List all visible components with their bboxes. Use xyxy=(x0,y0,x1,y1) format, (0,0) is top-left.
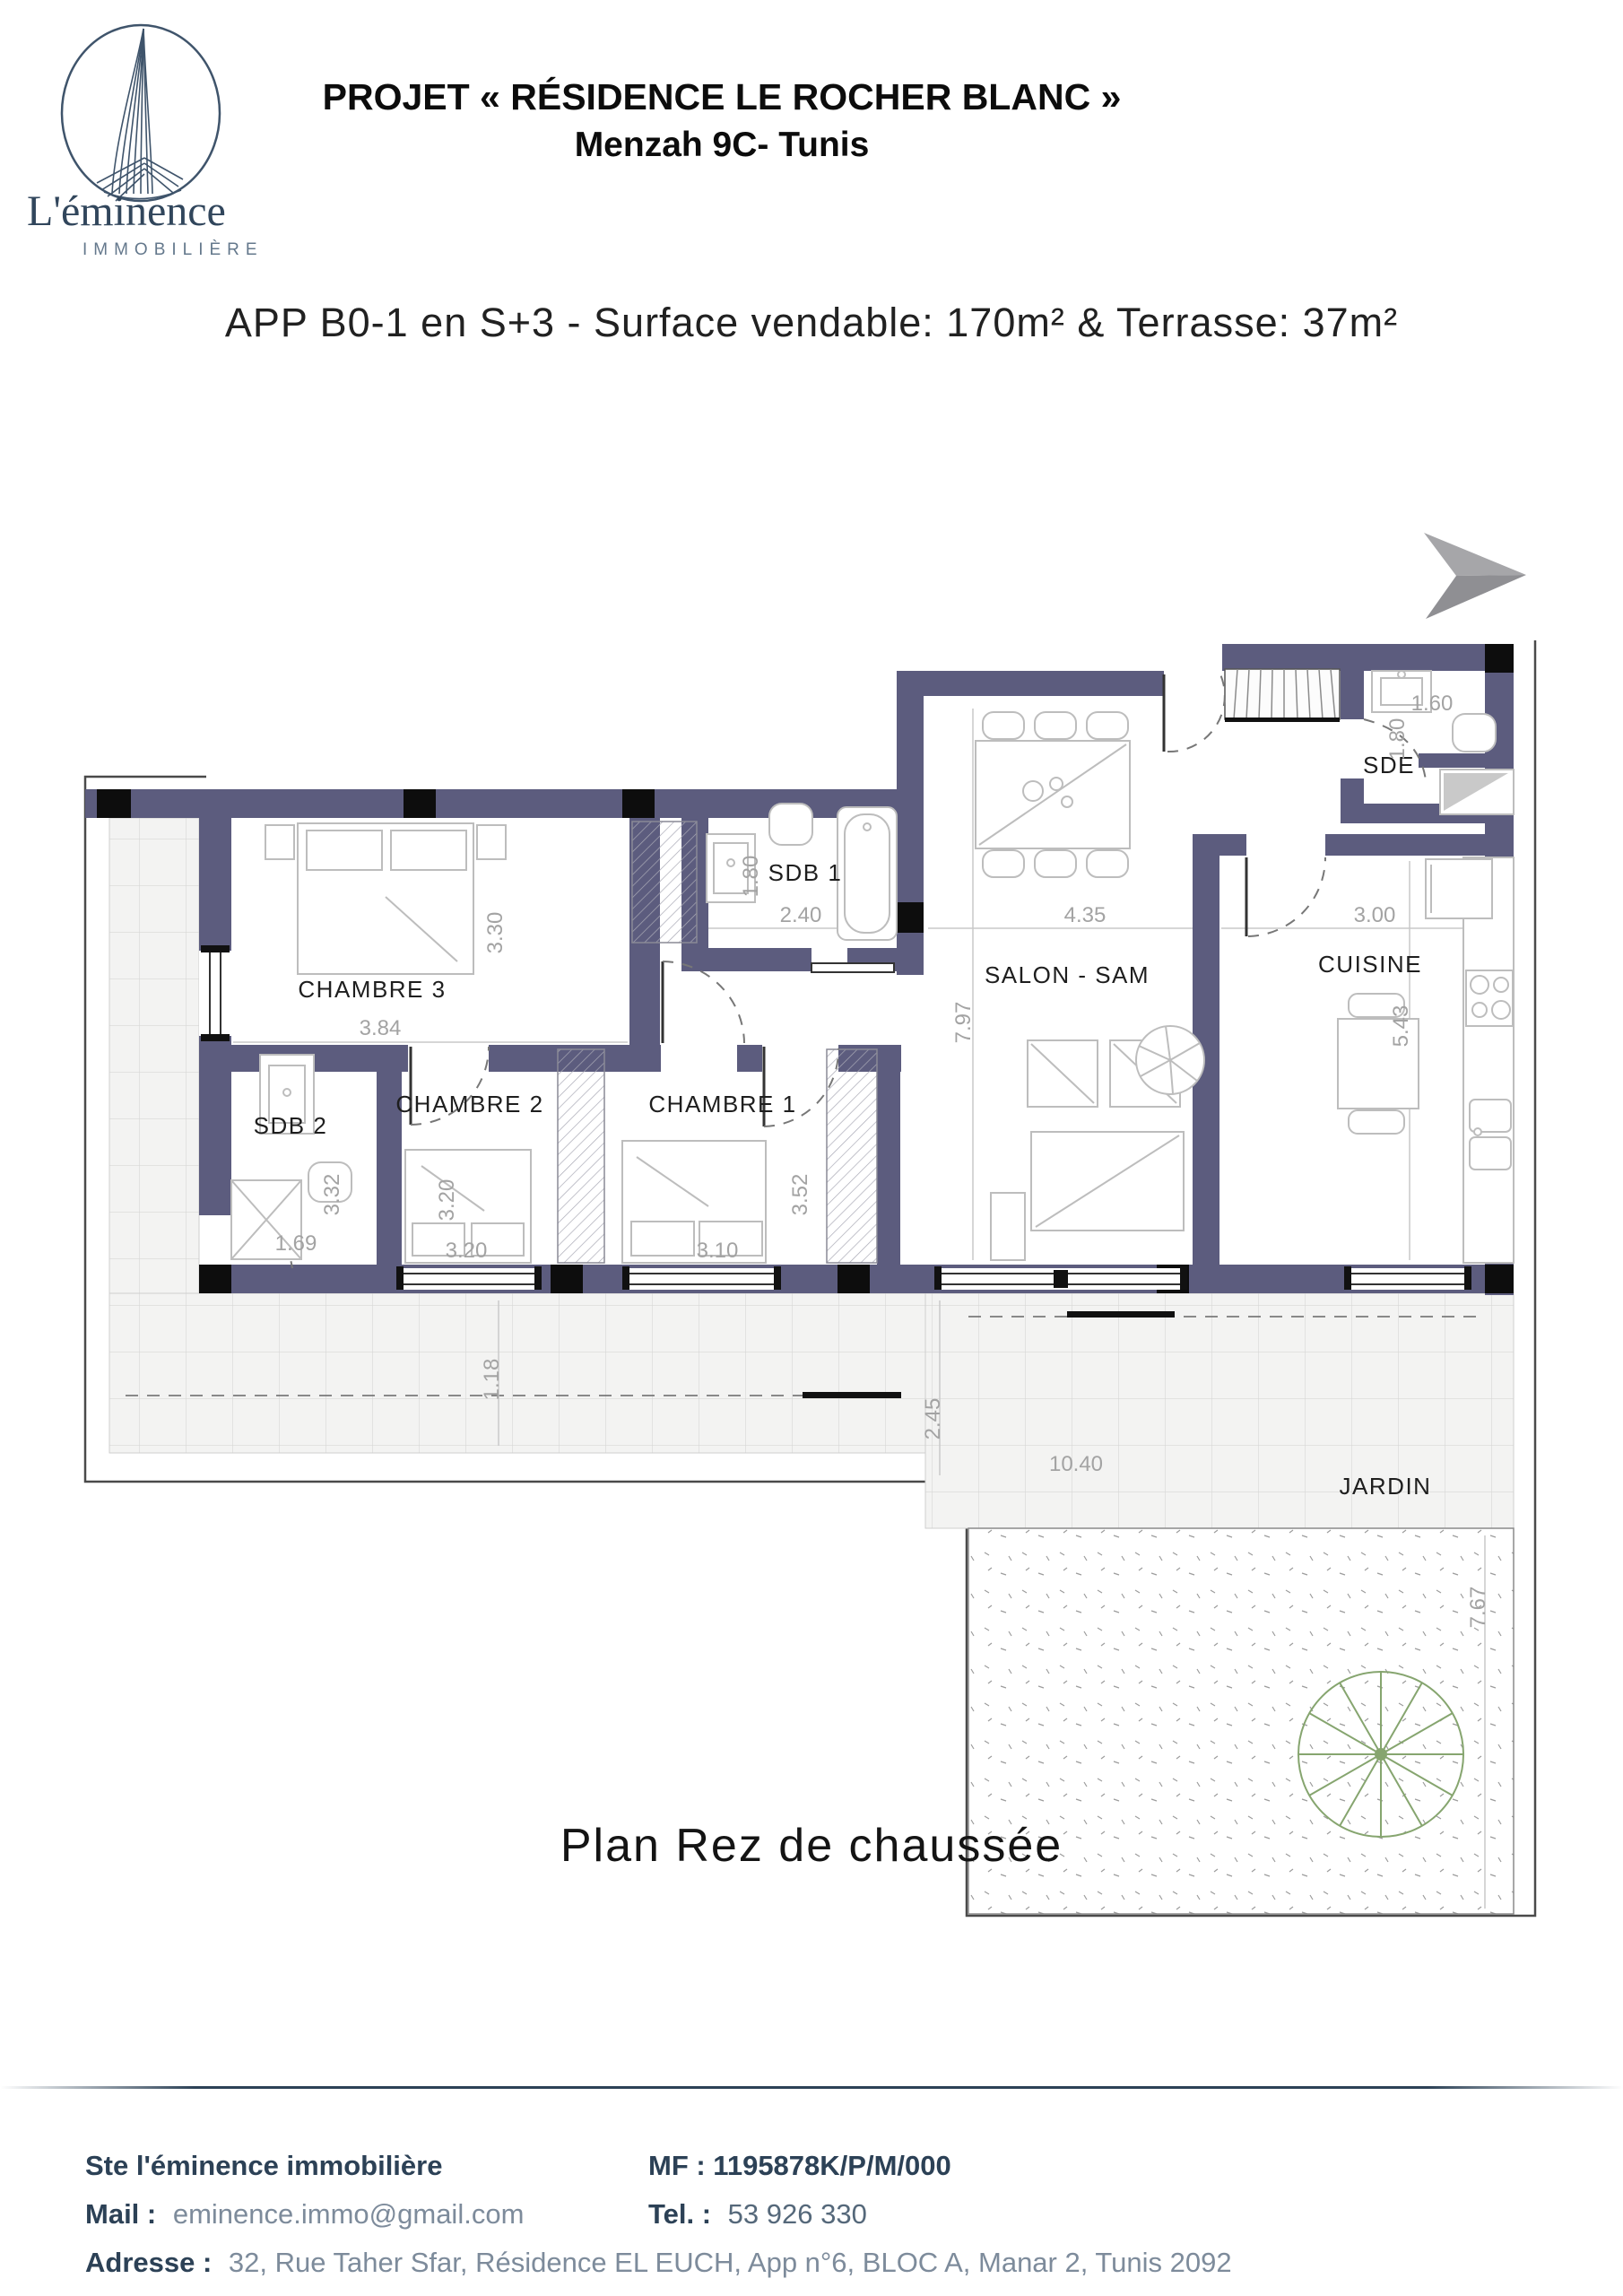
dimension-label: 10.40 xyxy=(1049,1452,1103,1476)
dimension-label: 5.43 xyxy=(1389,1005,1413,1048)
dimension-label: 2.40 xyxy=(780,903,822,927)
footer-divider xyxy=(0,2086,1623,2089)
window-chambre2 xyxy=(396,1266,542,1290)
sdb1-bathtub xyxy=(838,807,897,940)
north-arrow-icon xyxy=(1424,533,1526,619)
dimension-label: 1.80 xyxy=(739,856,763,898)
footer-contact-block: Ste l'éminence immobilière MF : 1195878K… xyxy=(85,2142,1592,2287)
dimension-label: 3.84 xyxy=(360,1016,402,1040)
room-label-chambre-2: CHAMBRE 2 xyxy=(395,1091,543,1118)
room-label-jardin: JARDIN xyxy=(1340,1473,1432,1500)
brochure-page: L'éminence IMMOBILIÈRE PROJET « RÉSIDENC… xyxy=(0,0,1623,2296)
dimension-label: 7.97 xyxy=(951,1002,976,1044)
footer-mail-label: Mail : xyxy=(85,2198,156,2230)
plant-icon xyxy=(1136,1026,1204,1094)
dimension-label: 1.80 xyxy=(1385,718,1410,761)
dimension-label: 3.20 xyxy=(446,1239,488,1263)
footer-address-label: Adresse : xyxy=(85,2247,212,2278)
room-label-cuisine: CUISINE xyxy=(1318,951,1422,978)
window-chambre3-left xyxy=(199,945,231,1041)
footer-tel-value: 53 926 330 xyxy=(728,2198,867,2230)
room-label-sdb-1: SDB 1 xyxy=(768,859,843,886)
dimension-label: 1.60 xyxy=(1411,691,1454,716)
fridge xyxy=(1426,859,1492,918)
dimension-label: 3.00 xyxy=(1354,903,1396,927)
footer-company: Ste l'éminence immobilière xyxy=(85,2142,648,2190)
footer-mf: MF : 1195878K/P/M/000 xyxy=(648,2142,951,2190)
window-cuisine xyxy=(1344,1266,1471,1290)
room-label-chambre-1: CHAMBRE 1 xyxy=(648,1091,796,1118)
sde-toilet xyxy=(1453,714,1496,752)
room-label-salon-sam: SALON - SAM xyxy=(985,961,1150,988)
dining-table xyxy=(976,712,1130,877)
room-label-sdb-2: SDB 2 xyxy=(254,1112,328,1139)
dimension-label: 2.45 xyxy=(921,1398,945,1440)
sde-shower xyxy=(1440,770,1514,814)
dimension-label: 3.20 xyxy=(435,1179,459,1222)
footer-address-value: 32, Rue Taher Sfar, Résidence EL EUCH, A… xyxy=(229,2247,1232,2278)
plan-caption: Plan Rez de chaussée xyxy=(0,1819,1623,1873)
bed-chambre3 xyxy=(265,823,506,974)
dimension-label: 3.32 xyxy=(320,1174,344,1216)
window-chambre1 xyxy=(622,1266,781,1290)
dimension-label: 7.67 xyxy=(1466,1587,1490,1629)
room-label-chambre-3: CHAMBRE 3 xyxy=(298,976,446,1003)
dimension-label: 3.10 xyxy=(697,1239,739,1263)
bed-chambre1 xyxy=(622,1141,766,1263)
floor-plan: CHAMBRE 3CHAMBRE 2CHAMBRE 1SDB 1SDB 2SDE… xyxy=(0,0,1623,2296)
dimension-label: 4.35 xyxy=(1064,903,1107,927)
dimension-label: 1.69 xyxy=(275,1231,317,1256)
terrace-south xyxy=(109,1293,1514,1528)
window-salon xyxy=(934,1266,1187,1290)
footer-tel-label: Tel. : xyxy=(648,2198,711,2230)
sdb1-toilet xyxy=(769,804,812,845)
stove xyxy=(1466,970,1513,1026)
dimension-label: 3.52 xyxy=(788,1174,812,1216)
dimension-label: 3.30 xyxy=(483,912,508,954)
tree-icon xyxy=(1298,1672,1463,1837)
dimension-label: 1.18 xyxy=(480,1359,504,1401)
footer-mail-value[interactable]: eminence.immo@gmail.com xyxy=(173,2198,525,2230)
stairs xyxy=(1225,669,1340,722)
